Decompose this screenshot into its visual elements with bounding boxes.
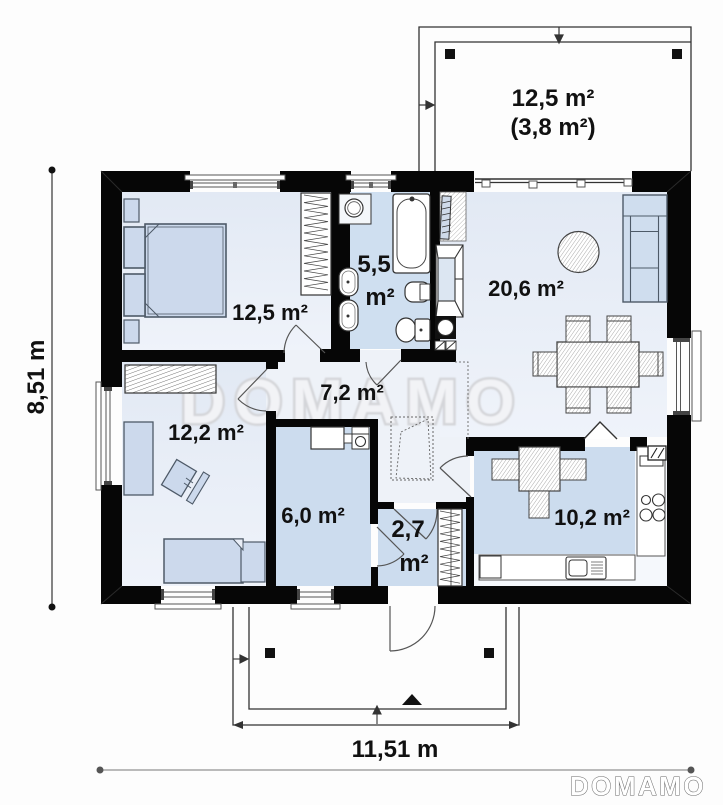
svg-text:2,7: 2,7 bbox=[391, 516, 424, 543]
svg-text:m²: m² bbox=[365, 284, 394, 311]
svg-text:20,6 m²: 20,6 m² bbox=[488, 276, 564, 301]
svg-text:(3,8 m²): (3,8 m²) bbox=[510, 114, 595, 141]
svg-text:DOMAMO: DOMAMO bbox=[570, 771, 706, 800]
svg-text:12,5 m²: 12,5 m² bbox=[232, 300, 308, 325]
svg-text:10,2 m²: 10,2 m² bbox=[554, 505, 630, 530]
svg-text:11,51 m: 11,51 m bbox=[352, 736, 439, 763]
svg-text:6,0 m²: 6,0 m² bbox=[281, 503, 345, 528]
svg-text:12,5 m²: 12,5 m² bbox=[512, 85, 595, 112]
svg-text:12,2 m²: 12,2 m² bbox=[168, 420, 244, 445]
svg-text:m²: m² bbox=[399, 550, 428, 577]
svg-text:7,2 m²: 7,2 m² bbox=[320, 380, 384, 405]
svg-text:5,5: 5,5 bbox=[357, 251, 390, 278]
svg-text:8,51 m: 8,51 m bbox=[23, 340, 50, 415]
